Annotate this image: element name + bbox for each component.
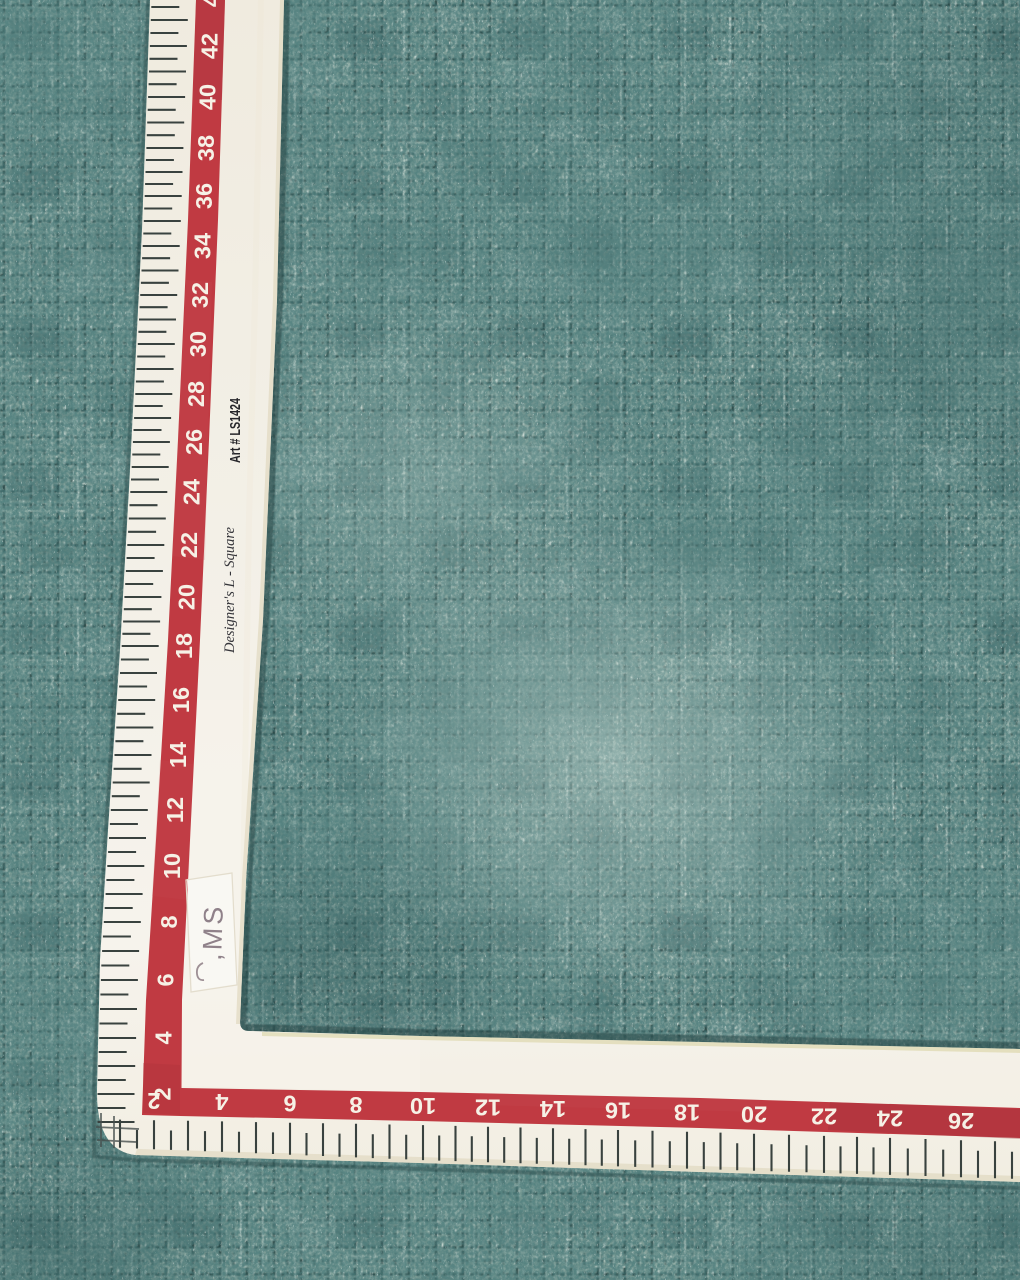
- svg-text:12: 12: [475, 1095, 501, 1121]
- svg-text:34: 34: [189, 233, 215, 259]
- svg-text:44: 44: [198, 0, 224, 7]
- svg-text:10: 10: [410, 1093, 436, 1119]
- svg-text:26: 26: [948, 1108, 974, 1134]
- svg-text:24: 24: [877, 1106, 903, 1132]
- svg-text:20: 20: [173, 584, 199, 610]
- svg-text:30: 30: [185, 331, 211, 357]
- svg-text:16: 16: [168, 687, 194, 713]
- svg-text:,MS: ,MS: [197, 903, 229, 961]
- svg-text:4: 4: [215, 1089, 228, 1115]
- svg-text:Designer's L - Square: Designer's L - Square: [222, 526, 238, 654]
- svg-text:24: 24: [178, 479, 204, 505]
- svg-text:2: 2: [147, 1088, 160, 1114]
- svg-text:6: 6: [283, 1091, 296, 1117]
- svg-text:18: 18: [674, 1099, 700, 1125]
- svg-text:36: 36: [191, 183, 217, 209]
- svg-text:10: 10: [159, 853, 185, 879]
- svg-text:22: 22: [176, 532, 202, 558]
- svg-text:Art # LS1424: Art # LS1424: [226, 397, 243, 463]
- svg-text:40: 40: [195, 84, 221, 110]
- svg-text:32: 32: [187, 282, 213, 308]
- svg-text:18: 18: [171, 633, 197, 659]
- svg-text:8: 8: [349, 1092, 362, 1118]
- svg-text:38: 38: [193, 135, 219, 161]
- svg-text:14: 14: [165, 742, 191, 768]
- svg-text:14: 14: [540, 1096, 566, 1122]
- svg-text:28: 28: [183, 381, 209, 407]
- svg-text:8: 8: [156, 915, 182, 928]
- svg-text:6: 6: [153, 973, 179, 986]
- svg-text:20: 20: [741, 1101, 767, 1127]
- svg-text:22: 22: [811, 1104, 837, 1130]
- svg-text:4: 4: [151, 1031, 177, 1044]
- svg-text:26: 26: [181, 429, 207, 455]
- svg-text:12: 12: [162, 797, 188, 823]
- svg-text:16: 16: [605, 1098, 631, 1124]
- svg-text:42: 42: [196, 33, 222, 59]
